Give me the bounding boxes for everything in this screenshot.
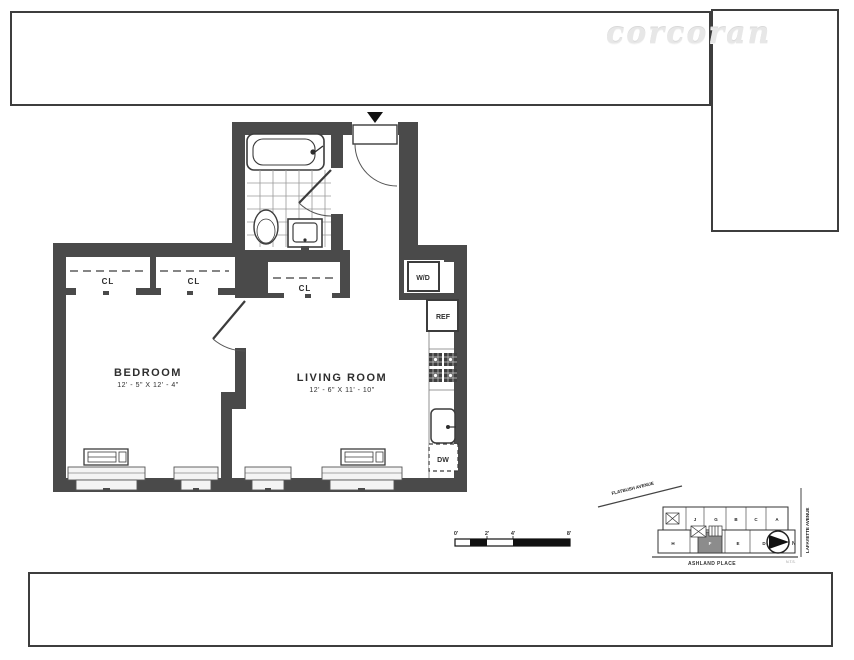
street-bottom-label: ASHLAND PLACE [688,561,736,567]
tub-faucet-icon [310,149,315,154]
unit-label: H [671,541,674,546]
bath-door-leaf [299,170,331,203]
corcoran-watermark: corcoran [606,16,771,51]
wall-top-left [53,243,235,257]
dw-label: DW [437,457,449,464]
unit-label-highlighted: F [709,541,712,546]
radiator [84,449,128,465]
wall-room-divider-lower [221,409,232,478]
scale-tick: 0' [454,531,459,537]
wall-bath-left [232,122,245,257]
radiator [341,449,385,465]
bathtub-inner [253,139,315,165]
wd-label: W/D [416,275,430,282]
burner-icon [434,374,437,377]
unit-label: E [736,541,739,546]
floorplan-svg: REF DW W/D [0,0,854,660]
north-label: N [792,541,796,547]
wall-wd-left [399,262,404,293]
window [174,467,218,492]
bath-door-swing-arc [299,203,331,216]
kitchen-sink [431,409,455,443]
stove [429,353,457,382]
ref-label: REF [436,314,451,321]
scale-note: N.T.S. [786,560,796,564]
wall-bath-divider-upper [331,122,343,168]
living-room-label: LIVING ROOM [297,372,387,384]
wall-left [53,243,66,492]
wall-wd-bottom [399,293,467,300]
entry-door-panel [353,125,397,144]
burner-icon [449,358,452,361]
window [322,467,402,492]
scale-tick: 8' [567,531,572,537]
site-plan: FLATBUSH AVENUE LAFAYETTE AVENUE ASHLAND… [598,481,810,567]
burner-icon [449,374,452,377]
bedroom-dims: 12' - 5" X 12' - 4" [117,382,179,389]
closet1-label: CL [102,277,115,286]
floorplan-page: corcoran [0,0,854,660]
unit-label: G [714,517,718,522]
burner-grates [429,353,457,382]
living-room-dims: 12' - 6" X 11' - 10" [309,387,374,394]
street-diagonal-line [598,486,682,507]
street-diagonal-label: FLATBUSH AVENUE [611,481,654,496]
window [68,467,145,492]
wall-entry-right [399,122,418,262]
closet2-label: CL [188,277,201,286]
toilet-bowl [257,219,275,243]
wall-room-divider-upper [235,348,246,394]
entry-marker-icon [367,112,383,123]
burner-icon [434,358,437,361]
wall-room-divider-jog [221,392,246,409]
bedroom-door-leaf [213,301,245,339]
radiators [84,449,385,465]
building-top-row [663,507,788,530]
bath-sink-base [301,246,309,252]
closet3-label: CL [299,284,312,293]
kitchen: REF DW [427,300,458,478]
wall-bath-divider-lower [331,214,343,252]
entry-door-swing-arc [355,144,397,186]
scale-bar: 0' 2' 4' 8' [454,531,572,546]
window [245,467,291,492]
street-right-label: LAFAYETTE AVENUE [805,508,810,553]
bedroom-label: BEDROOM [114,367,182,379]
bathroom [247,134,331,252]
bath-sink-drain-icon [303,238,306,241]
